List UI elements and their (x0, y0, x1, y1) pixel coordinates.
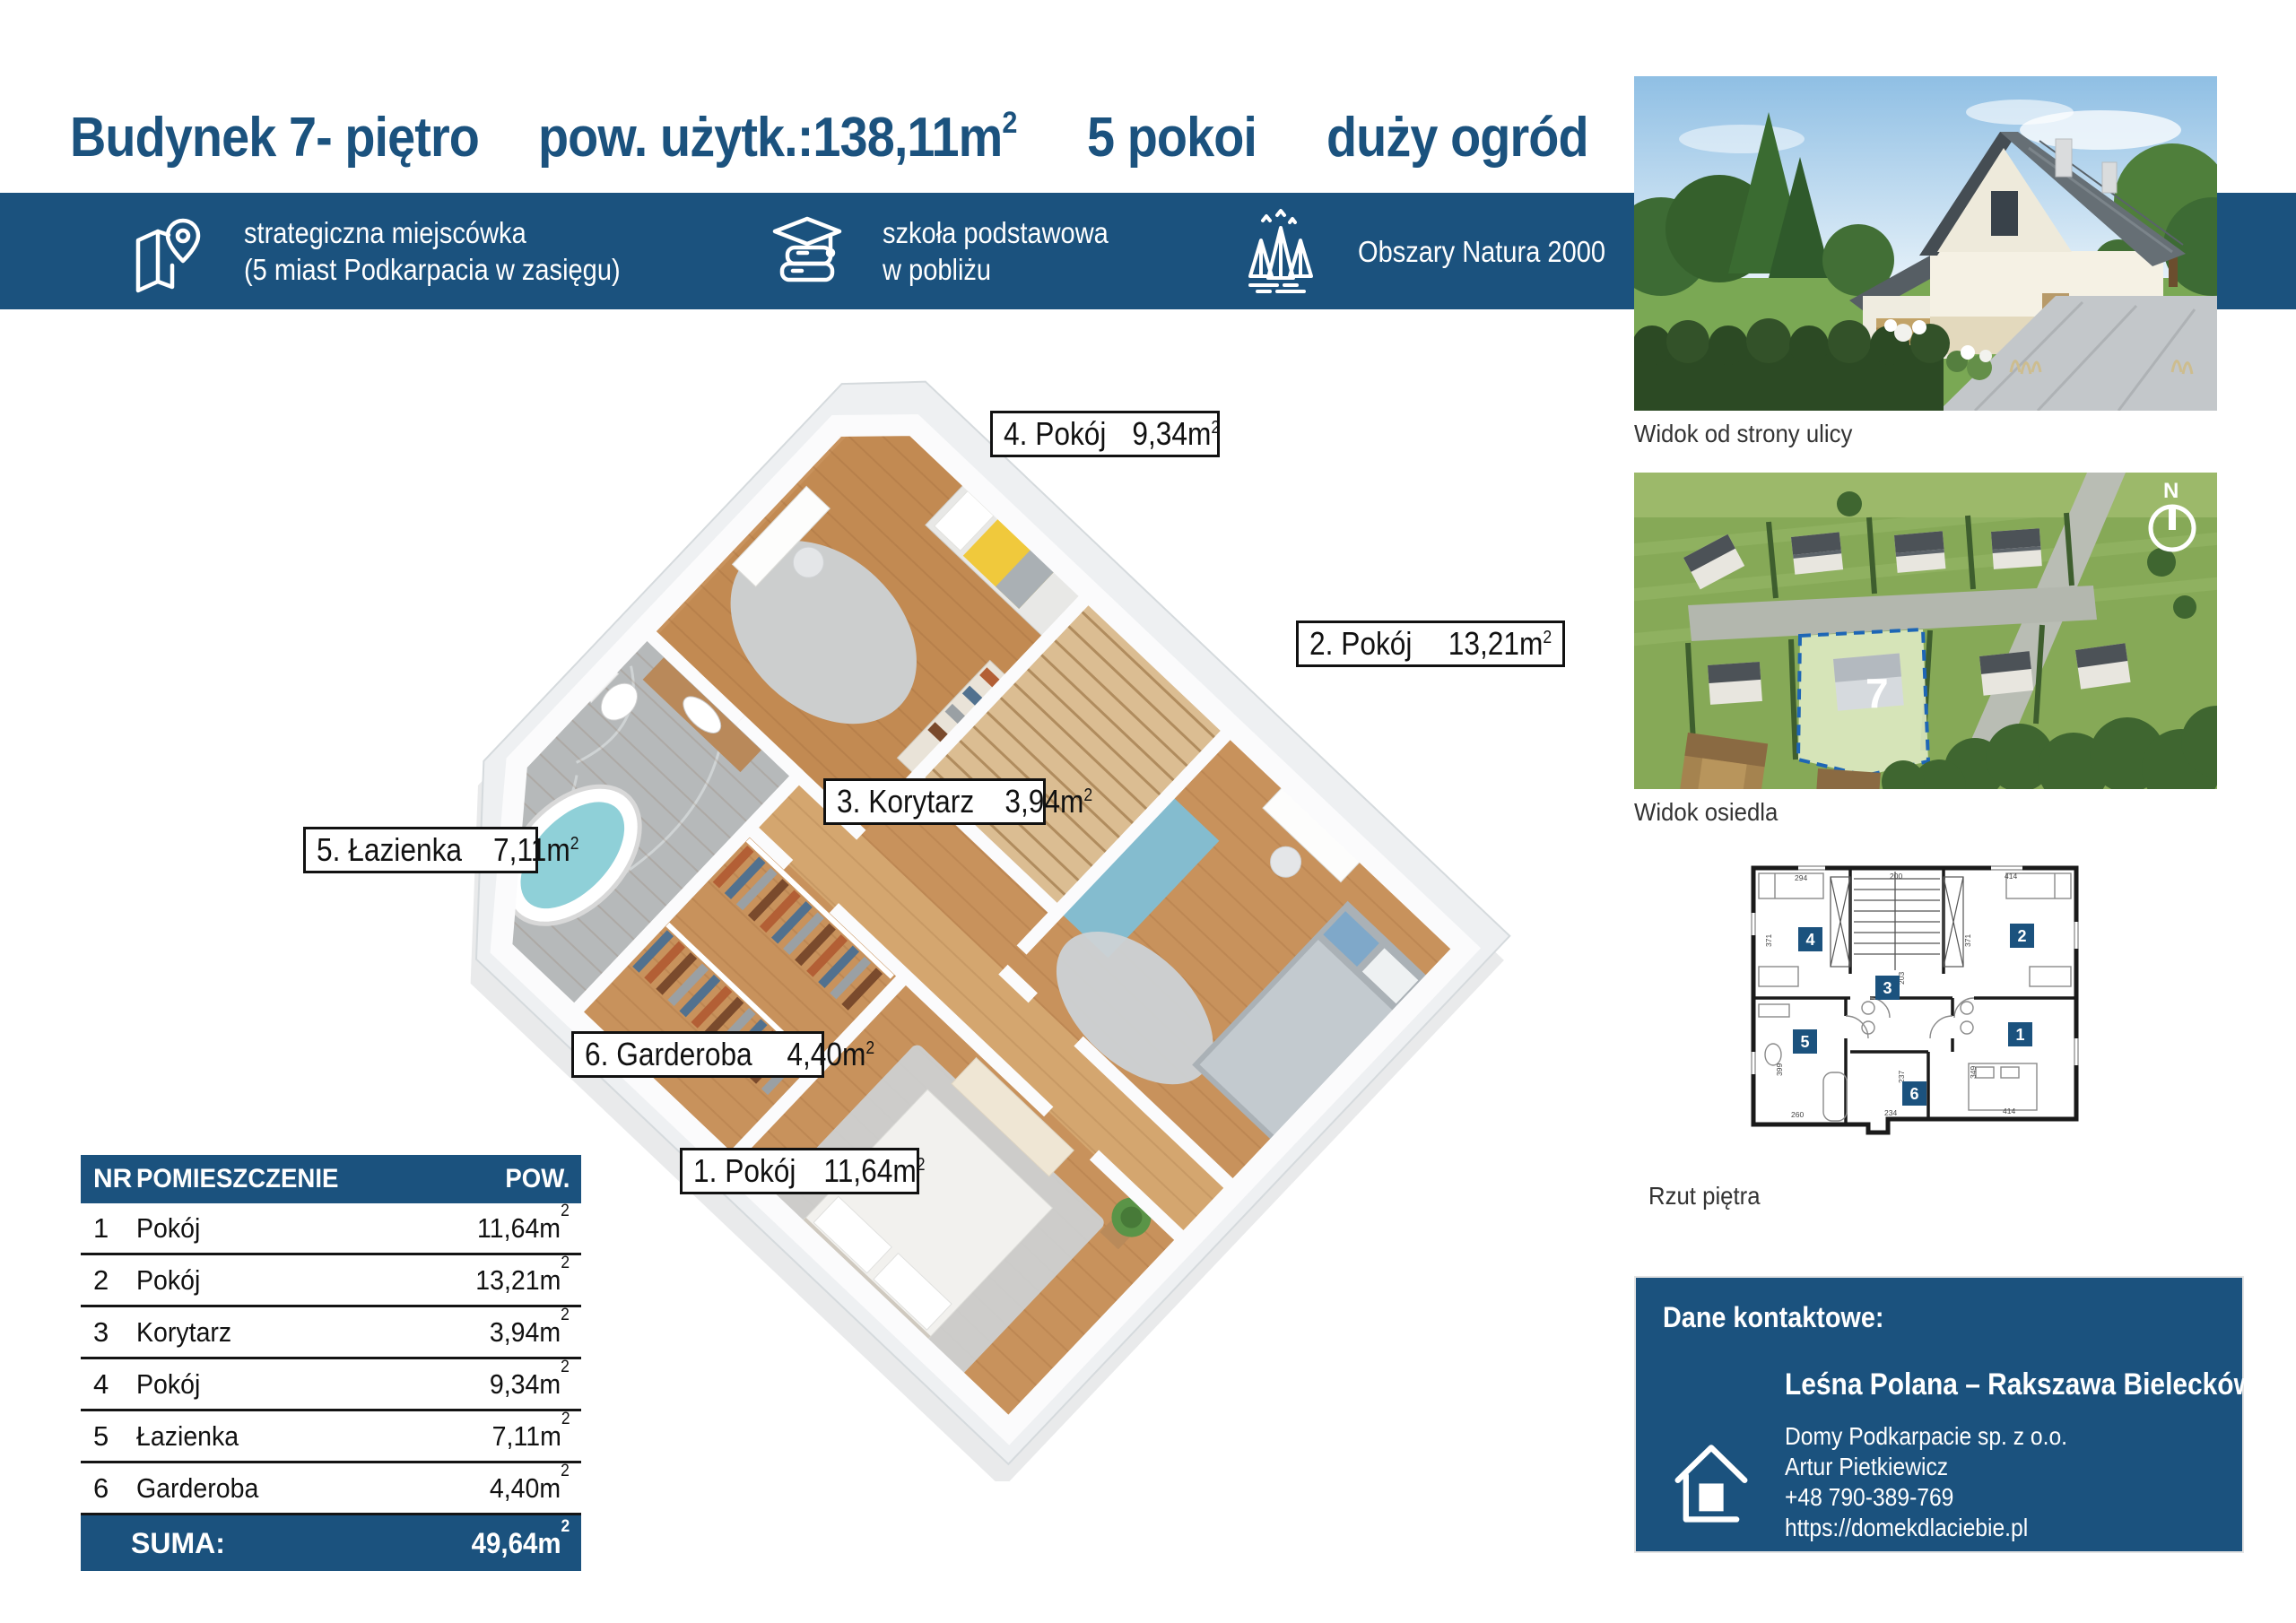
banner-natura-line1: Obszary Natura 2000 (1358, 233, 1605, 270)
superscript: 2 (1543, 628, 1552, 647)
room-label-6-area-value: 4,40m (787, 1036, 865, 1072)
banner-item-school: szkoła podstawowa w pobliżu (762, 193, 1139, 309)
room-label-3-area-value: 3,94m (1004, 783, 1083, 820)
row-area: 7,11m2 (491, 1420, 581, 1453)
contact-person: Artur Pietkiewicz (1785, 1452, 2067, 1482)
table-row: 1 Pokój 11,64m2 (81, 1203, 581, 1255)
dim-label: 234 (1884, 1108, 1897, 1117)
superscript: 2 (570, 834, 579, 854)
rooms-table-header: NR POMIESZCZENIE POW. (81, 1155, 581, 1203)
room-badge-2: 2 (2017, 927, 2026, 945)
room-label-3: 3. Korytarz 3,94m2 (823, 778, 1046, 825)
table-row: 2 Pokój 13,21m2 (81, 1255, 581, 1307)
superscript: 2 (1002, 106, 1016, 140)
street-view-caption: Widok od strony ulicy (1634, 420, 1852, 448)
page-title-rooms: 5 pokoi (1087, 106, 1257, 169)
row-nr: 2 (81, 1264, 136, 1297)
room-label-2: 2. Pokój 13,21m2 (1296, 621, 1565, 667)
table-row: 4 Pokój 9,34m2 (81, 1359, 581, 1411)
estate-aerial-photo: 7 N (1634, 473, 2217, 789)
table-row: 5 Łazienka 7,11m2 (81, 1411, 581, 1463)
superscript: 2 (1083, 785, 1092, 805)
sum-area: 49,64m2 (472, 1527, 581, 1560)
contact-website: https://domekdlaciebie.pl (1785, 1513, 2067, 1543)
room-badge-5: 5 (1800, 1033, 1809, 1051)
room-badge-1: 1 (2015, 1026, 2024, 1044)
table-sum-row: SUMA: 49,64m2 (81, 1515, 581, 1571)
banner-school-line2: w pobliżu (883, 251, 1109, 288)
compass-north-label: N (2163, 479, 2179, 503)
row-area-value: 7,11m (491, 1420, 561, 1452)
superscript: 2 (917, 1155, 926, 1175)
superscript: 2 (561, 1462, 570, 1480)
row-nr: 6 (81, 1472, 136, 1505)
superscript: 2 (561, 1358, 570, 1376)
dim-label: 371 (1963, 934, 1972, 947)
row-area: 3,94m2 (490, 1316, 581, 1349)
estate-caption: Widok osiedla (1634, 798, 1778, 827)
room-badge-3: 3 (1883, 979, 1892, 997)
row-room: Pokój (136, 1264, 440, 1297)
row-room: Pokój (136, 1212, 442, 1245)
room-label-4-name: 4. Pokój (1004, 415, 1106, 453)
header-nr: NR (81, 1164, 136, 1194)
row-area: 4,40m2 (490, 1472, 581, 1505)
room-label-1-area: 11,64m2 (824, 1152, 926, 1190)
row-room: Korytarz (136, 1316, 454, 1349)
banner-school-line1: szkoła podstawowa (883, 214, 1109, 251)
header-area: POW. (505, 1164, 581, 1194)
contact-box: Dane kontaktowe: Leśna Polana – Rakszawa… (1636, 1278, 2242, 1551)
contact-heading: Dane kontaktowe: (1663, 1301, 1883, 1334)
row-area-value: 9,34m (490, 1368, 561, 1400)
dim-label: 349 (1969, 1066, 1978, 1079)
row-area: 11,64m2 (477, 1212, 581, 1245)
room-label-4-area: 9,34m2 (1132, 415, 1220, 453)
banner-item-location: strategiczna miejscówka (5 miast Podkarp… (124, 193, 672, 309)
room-label-3-name: 3. Korytarz (837, 783, 974, 820)
room-label-2-area: 13,21m2 (1448, 625, 1552, 663)
superscript: 2 (561, 1306, 570, 1324)
superscript: 2 (561, 1517, 570, 1536)
room-label-4: 4. Pokój 9,34m2 (990, 411, 1220, 457)
room-label-2-name: 2. Pokój (1309, 625, 1412, 663)
dim-label: 200 (1890, 872, 1902, 881)
room-badge-4: 4 (1805, 931, 1814, 949)
house-icon (1666, 1428, 1756, 1529)
banner-location-line1: strategiczna miejscówka (244, 214, 621, 251)
room-badge-6: 6 (1909, 1085, 1918, 1103)
room-label-2-area-value: 13,21m (1448, 625, 1544, 662)
dim-label: 414 (2005, 872, 2017, 881)
header-room: POMIESZCZENIE (136, 1164, 469, 1194)
superscript: 2 (561, 1254, 570, 1272)
room-label-1-name: 1. Pokój (693, 1152, 796, 1190)
dim-label: 399 (1775, 1063, 1784, 1076)
floorplan-2d-caption: Rzut piętra (1648, 1182, 1761, 1211)
room-label-6-name: 6. Garderoba (585, 1036, 752, 1073)
table-row: 6 Garderoba 4,40m2 (81, 1463, 581, 1515)
row-room: Pokój (136, 1368, 454, 1401)
room-label-5-area: 7,11m2 (493, 831, 578, 869)
dim-label: 371 (1764, 934, 1773, 947)
row-area-value: 13,21m (475, 1264, 561, 1296)
row-area-value: 3,94m (490, 1316, 561, 1348)
table-row: 3 Korytarz 3,94m2 (81, 1307, 581, 1359)
room-label-3-area: 3,94m2 (1004, 783, 1092, 820)
contact-company: Domy Podkarpacie sp. z o.o. (1785, 1421, 2067, 1452)
row-area-value: 4,40m (490, 1472, 561, 1504)
contact-project-name: Leśna Polana – Rakszawa Bieleckówka (1785, 1367, 2284, 1402)
dim-label: 294 (1795, 873, 1807, 882)
superscript: 2 (561, 1202, 570, 1220)
room-label-6-area: 4,40m2 (787, 1036, 874, 1073)
page-title-building: Budynek 7- piętro (70, 106, 479, 169)
map-location-icon (124, 206, 213, 296)
superscript: 2 (1211, 418, 1220, 438)
superscript: 2 (561, 1410, 570, 1428)
dim-label: 414 (2003, 1107, 2015, 1115)
row-nr: 4 (81, 1368, 136, 1401)
row-room: Garderoba (136, 1472, 454, 1505)
sum-label: SUMA: (81, 1527, 462, 1560)
rooms-table: NR POMIESZCZENIE POW. 1 Pokój 11,64m2 2 … (81, 1155, 581, 1571)
room-label-1-area-value: 11,64m (824, 1152, 917, 1189)
dim-label: 237 (1897, 1071, 1906, 1083)
sum-area-value: 49,64m (472, 1527, 561, 1559)
flyer-page: Budynek 7- piętro pow. użytk.:138,11m2 5… (0, 0, 2296, 1623)
page-title-area-text: pow. użytk.:138,11m (538, 107, 1002, 169)
lot-number-label: 7 (1865, 670, 1889, 716)
floorplan-2d: 294 200 414 371 371 203 399 349 237 260 … (1744, 859, 2085, 1139)
page-title-area: pow. użytk.:138,11m2 (538, 106, 1016, 169)
room-label-4-area-value: 9,34m (1132, 415, 1211, 452)
row-room: Łazienka (136, 1420, 457, 1453)
room-label-5: 5. Łazienka 7,11m2 (303, 827, 538, 873)
banner-item-natura: Obszary Natura 2000 (1236, 193, 1639, 309)
room-label-5-name: 5. Łazienka (317, 831, 462, 869)
row-nr: 5 (81, 1420, 136, 1453)
superscript: 2 (866, 1038, 875, 1058)
forest-icon (1236, 206, 1326, 296)
dim-label: 260 (1791, 1110, 1804, 1119)
room-label-6: 6. Garderoba 4,40m2 (571, 1031, 824, 1078)
row-area: 9,34m2 (490, 1368, 581, 1401)
school-icon (762, 206, 852, 296)
room-label-1: 1. Pokój 11,64m2 (680, 1148, 919, 1194)
room-label-5-area-value: 7,11m (493, 831, 570, 868)
contact-phone: +48 790-389-769 (1785, 1482, 2067, 1513)
row-area-value: 11,64m (477, 1212, 561, 1244)
street-view-photo (1634, 76, 2217, 411)
banner-location-line2: (5 miast Podkarpacia w zasięgu) (244, 251, 621, 288)
row-nr: 3 (81, 1316, 136, 1349)
page-title-garden: duży ogród (1326, 106, 1588, 169)
row-area: 13,21m2 (475, 1264, 581, 1297)
row-nr: 1 (81, 1212, 136, 1245)
